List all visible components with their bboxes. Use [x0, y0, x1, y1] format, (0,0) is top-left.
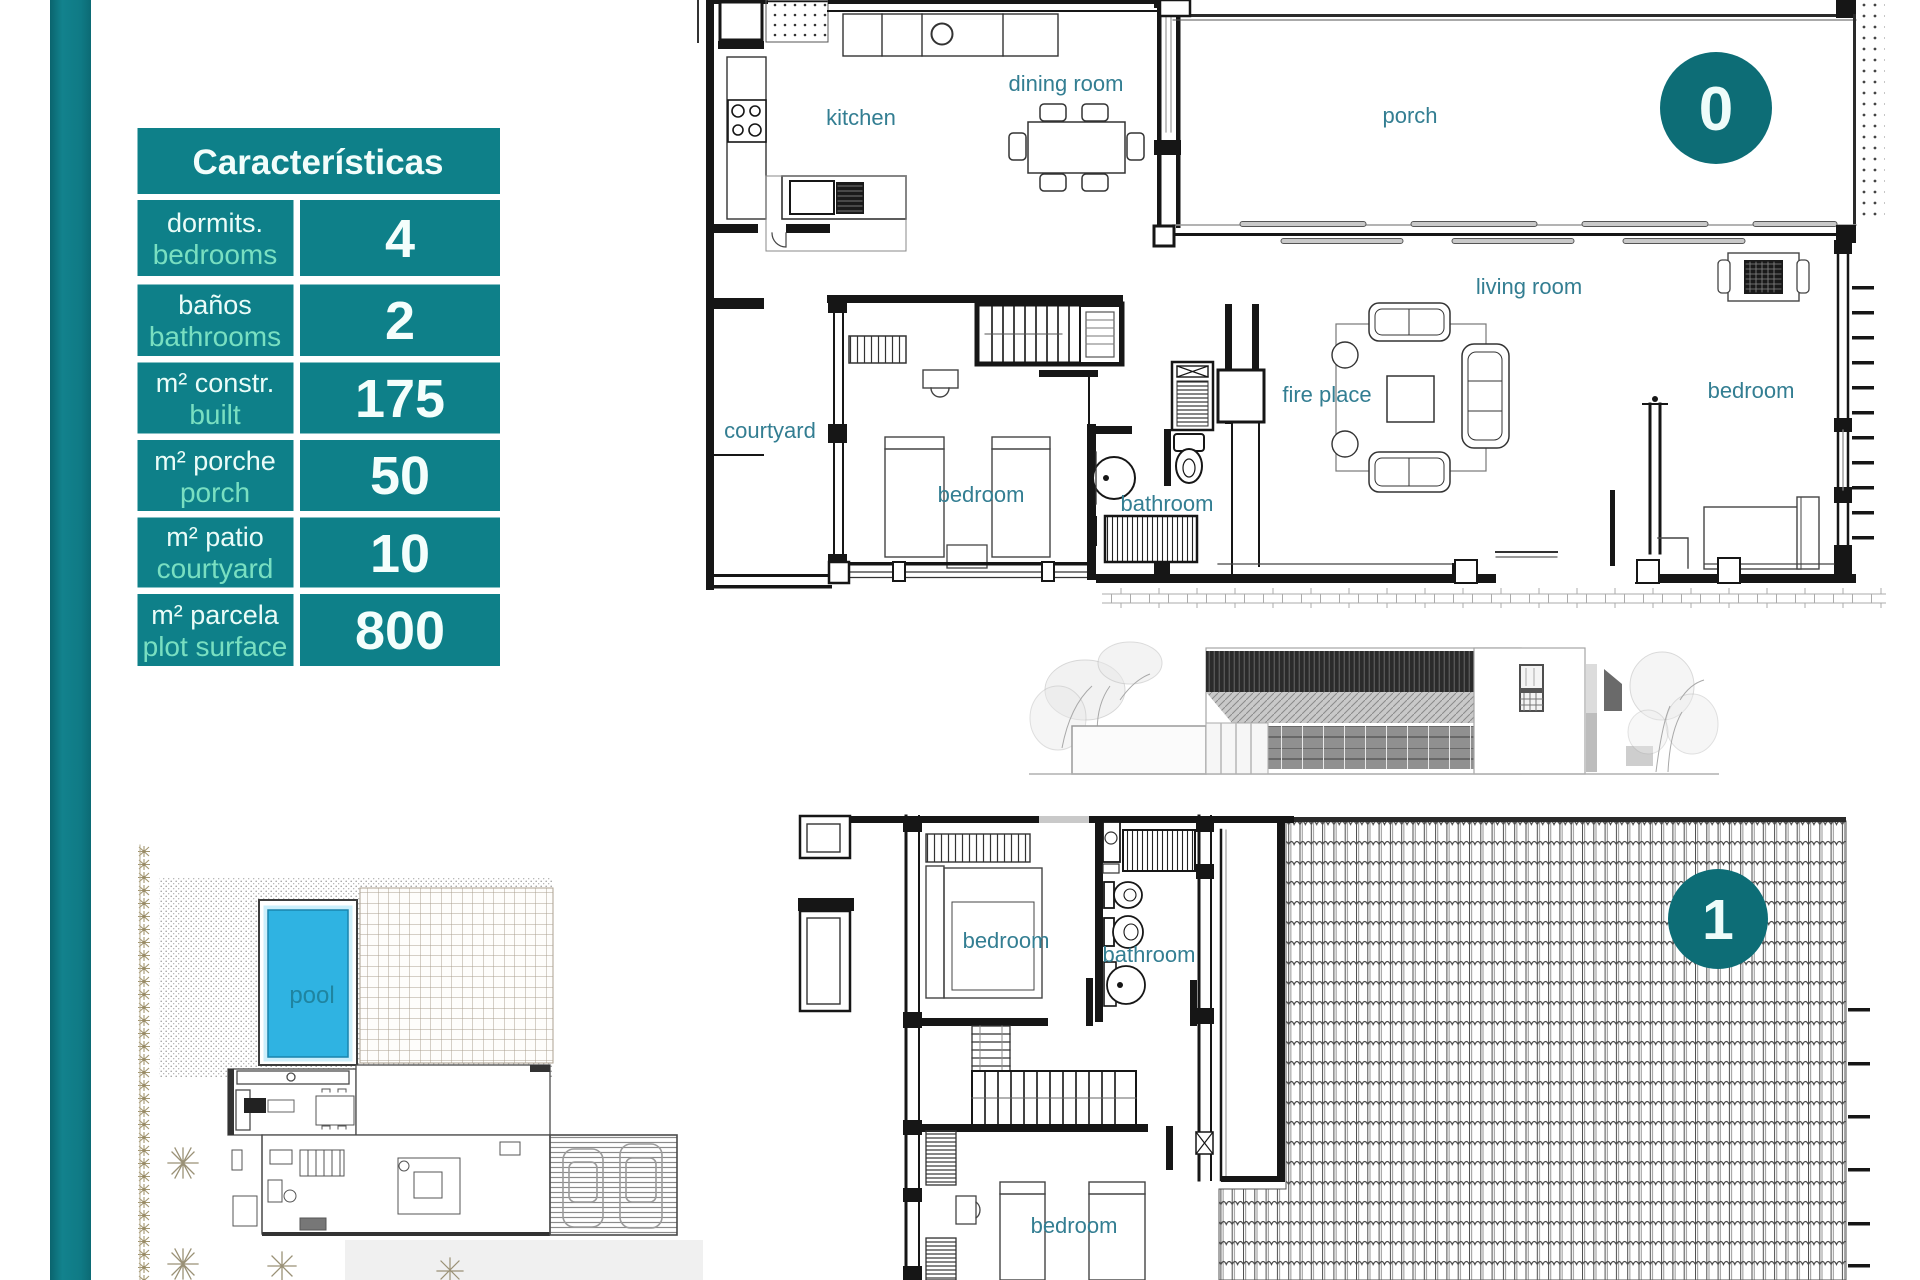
svg-text:4: 4 [385, 209, 415, 269]
svg-text:porch: porch [180, 477, 250, 508]
svg-text:1: 1 [1702, 888, 1734, 952]
svg-text:living room: living room [1476, 274, 1582, 299]
svg-text:50: 50 [370, 446, 430, 506]
svg-text:bedrooms: bedrooms [153, 239, 278, 270]
svg-text:800: 800 [355, 601, 445, 661]
svg-text:bathroom: bathroom [1121, 491, 1214, 516]
svg-text:courtyard: courtyard [724, 418, 816, 443]
svg-text:bedroom: bedroom [963, 928, 1050, 953]
svg-text:bedroom: bedroom [938, 482, 1025, 507]
svg-text:plot surface: plot surface [143, 631, 288, 662]
svg-text:fire place: fire place [1282, 382, 1371, 407]
svg-text:bathrooms: bathrooms [149, 321, 281, 352]
svg-text:10: 10 [370, 524, 430, 584]
svg-text:dining room: dining room [1009, 71, 1124, 96]
svg-text:2: 2 [385, 291, 415, 351]
svg-text:bathroom: bathroom [1103, 942, 1196, 967]
svg-text:m² parcela: m² parcela [151, 600, 280, 630]
svg-text:0: 0 [1699, 75, 1733, 144]
svg-text:dormits.: dormits. [167, 208, 263, 238]
svg-text:m² constr.: m² constr. [156, 368, 275, 398]
svg-text:built: built [189, 399, 241, 430]
svg-text:175: 175 [355, 369, 445, 429]
svg-text:baños: baños [178, 290, 252, 320]
svg-text:pool: pool [289, 982, 334, 1009]
svg-text:bedroom: bedroom [1031, 1213, 1118, 1238]
svg-text:porch: porch [1382, 103, 1437, 128]
svg-text:Características: Características [193, 143, 444, 182]
svg-text:bedroom: bedroom [1708, 378, 1795, 403]
svg-text:m² patio: m² patio [166, 522, 264, 552]
svg-text:kitchen: kitchen [826, 105, 896, 130]
svg-text:m² porche: m² porche [154, 446, 276, 476]
svg-text:courtyard: courtyard [157, 553, 274, 584]
